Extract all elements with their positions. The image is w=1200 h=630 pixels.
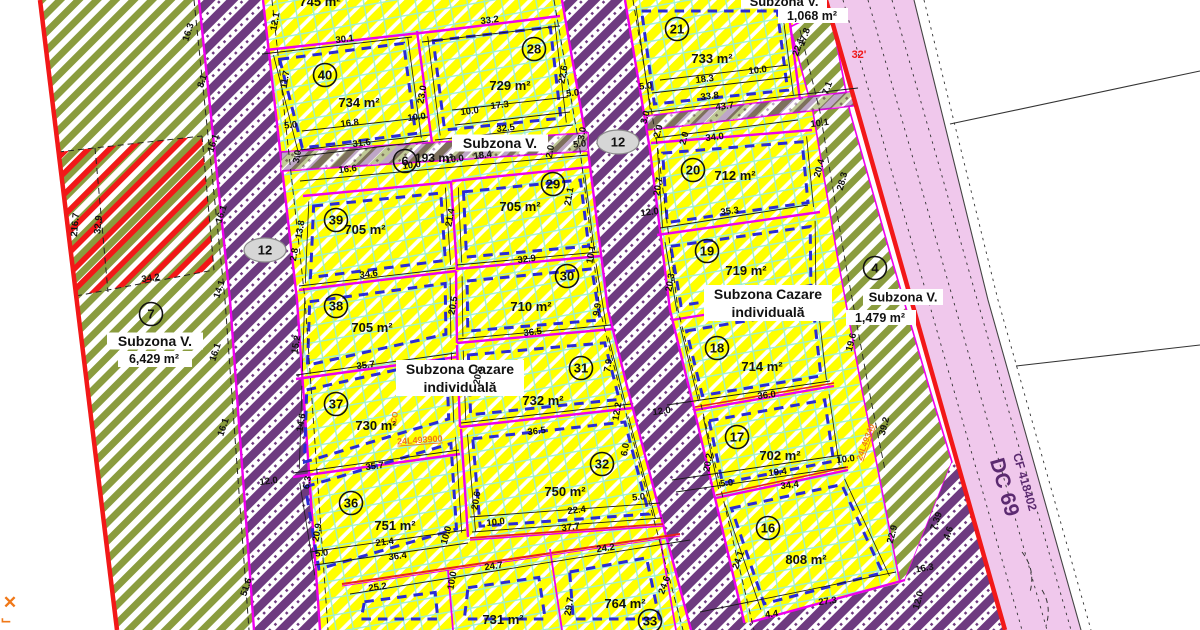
svg-text:5.0: 5.0 <box>283 119 297 132</box>
svg-text:35.7: 35.7 <box>356 359 376 372</box>
svg-text:6.0: 6.0 <box>619 442 632 457</box>
svg-text:1,479 m²: 1,479 m² <box>855 311 905 325</box>
svg-text:16.8: 16.8 <box>340 117 360 130</box>
svg-text:5.0: 5.0 <box>565 87 579 100</box>
svg-text:32.9: 32.9 <box>92 215 105 234</box>
svg-text:30: 30 <box>560 269 574 284</box>
svg-text:10.0: 10.0 <box>407 111 427 124</box>
svg-text:29: 29 <box>546 177 560 192</box>
svg-text:Subzona V.: Subzona V. <box>869 289 938 304</box>
svg-text:38: 38 <box>329 299 343 314</box>
svg-text:31: 31 <box>574 361 588 376</box>
svg-text:individuală: individuală <box>731 304 804 320</box>
svg-text:37: 37 <box>329 397 343 412</box>
svg-text:36: 36 <box>344 496 358 511</box>
svg-text:4.4: 4.4 <box>764 608 779 621</box>
svg-text:32.5: 32.5 <box>496 122 516 135</box>
svg-text:5.0: 5.0 <box>638 80 652 93</box>
svg-text:31.6: 31.6 <box>352 137 372 150</box>
svg-text:30.1: 30.1 <box>335 33 355 46</box>
svg-text:individuală: individuală <box>423 379 496 395</box>
svg-text:5.0: 5.0 <box>719 477 733 490</box>
svg-text:714 m²: 714 m² <box>741 359 783 374</box>
svg-text:3.0: 3.0 <box>291 149 304 164</box>
svg-text:16: 16 <box>761 521 775 536</box>
svg-text:12: 12 <box>258 243 272 258</box>
svg-text:36.0: 36.0 <box>757 389 777 402</box>
svg-text:Subzona V.: Subzona V. <box>750 0 819 9</box>
svg-text:34.4: 34.4 <box>780 479 800 492</box>
svg-text:712 m²: 712 m² <box>714 168 756 183</box>
svg-text:10.0: 10.0 <box>445 153 465 166</box>
svg-text:6.3: 6.3 <box>301 475 314 490</box>
svg-text:745 m²: 745 m² <box>299 0 341 9</box>
svg-text:1,068 m²: 1,068 m² <box>787 9 837 23</box>
svg-text:12: 12 <box>611 135 625 150</box>
svg-text:21: 21 <box>670 22 684 37</box>
svg-text:Subzona Cazare: Subzona Cazare <box>406 361 514 377</box>
svg-text:10.0: 10.0 <box>460 105 480 118</box>
svg-text:764 m²: 764 m² <box>604 596 646 611</box>
svg-text:3.0: 3.0 <box>576 126 589 141</box>
svg-text:7: 7 <box>147 307 154 322</box>
svg-text:17: 17 <box>730 430 744 445</box>
svg-text:719 m²: 719 m² <box>725 263 767 278</box>
svg-text:33: 33 <box>643 614 657 629</box>
svg-text:5.0: 5.0 <box>631 491 645 504</box>
svg-text:33.2: 33.2 <box>480 14 500 27</box>
svg-text:32: 32 <box>595 457 609 472</box>
svg-text:734 m²: 734 m² <box>338 95 380 110</box>
svg-text:10.0: 10.0 <box>836 453 856 466</box>
svg-text:✕: ✕ <box>3 593 17 612</box>
svg-text:705 m²: 705 m² <box>499 199 541 214</box>
svg-text:35.7: 35.7 <box>365 460 385 473</box>
svg-text:43.7: 43.7 <box>715 100 735 113</box>
svg-text:216.7: 216.7 <box>69 212 82 237</box>
svg-text:5.0: 5.0 <box>314 547 328 560</box>
svg-text:751 m²: 751 m² <box>374 518 416 533</box>
svg-text:731 m²: 731 m² <box>482 612 524 627</box>
svg-text:2.0: 2.0 <box>544 144 557 159</box>
svg-text:35.3: 35.3 <box>720 205 740 218</box>
svg-text:710 m²: 710 m² <box>510 299 552 314</box>
svg-text:18.4: 18.4 <box>473 149 493 162</box>
svg-text:19.4: 19.4 <box>768 466 788 479</box>
svg-text:32': 32' <box>852 49 867 61</box>
svg-text:21.4: 21.4 <box>375 536 395 549</box>
svg-text:10.0: 10.0 <box>748 64 768 77</box>
svg-text:Subzona V.: Subzona V. <box>463 135 537 151</box>
svg-text:4: 4 <box>871 261 879 276</box>
svg-text:⌙: ⌙ <box>1 612 12 627</box>
svg-text:12.0: 12.0 <box>259 475 279 488</box>
svg-text:28: 28 <box>527 42 541 57</box>
svg-text:808 m²: 808 m² <box>785 552 827 567</box>
svg-text:19: 19 <box>700 244 714 259</box>
svg-text:7.9: 7.9 <box>602 358 615 373</box>
svg-text:20: 20 <box>686 163 700 178</box>
svg-text:Subzona V.: Subzona V. <box>118 333 192 349</box>
svg-text:10.0: 10.0 <box>402 159 422 172</box>
svg-text:9.9: 9.9 <box>591 302 604 317</box>
svg-text:732 m²: 732 m² <box>522 393 564 408</box>
svg-text:729 m²: 729 m² <box>489 78 531 93</box>
svg-text:34.6: 34.6 <box>359 268 379 281</box>
svg-text:32.9: 32.9 <box>517 253 537 266</box>
svg-text:16.6: 16.6 <box>338 163 358 176</box>
svg-text:18: 18 <box>710 341 724 356</box>
svg-text:34.0: 34.0 <box>705 131 725 144</box>
svg-text:705 m²: 705 m² <box>344 222 386 237</box>
svg-text:750 m²: 750 m² <box>544 484 586 499</box>
svg-text:36.5: 36.5 <box>523 326 543 339</box>
svg-text:40: 40 <box>318 68 332 83</box>
svg-text:10.0: 10.0 <box>486 516 506 529</box>
svg-text:22.4: 22.4 <box>567 504 587 517</box>
svg-text:37.7: 37.7 <box>561 521 581 534</box>
svg-text:2.8: 2.8 <box>288 247 301 262</box>
svg-text:36.4: 36.4 <box>388 550 408 563</box>
svg-text:39: 39 <box>329 213 343 228</box>
svg-text:36.5: 36.5 <box>527 425 547 438</box>
svg-text:18.3: 18.3 <box>695 73 715 86</box>
svg-text:705 m²: 705 m² <box>351 320 393 335</box>
svg-text:6,429 m²: 6,429 m² <box>129 352 179 366</box>
svg-text:17.3: 17.3 <box>490 99 510 112</box>
svg-text:733 m²: 733 m² <box>691 51 733 66</box>
svg-text:702 m²: 702 m² <box>759 448 801 463</box>
svg-text:Subzona Cazare: Subzona Cazare <box>714 286 822 302</box>
